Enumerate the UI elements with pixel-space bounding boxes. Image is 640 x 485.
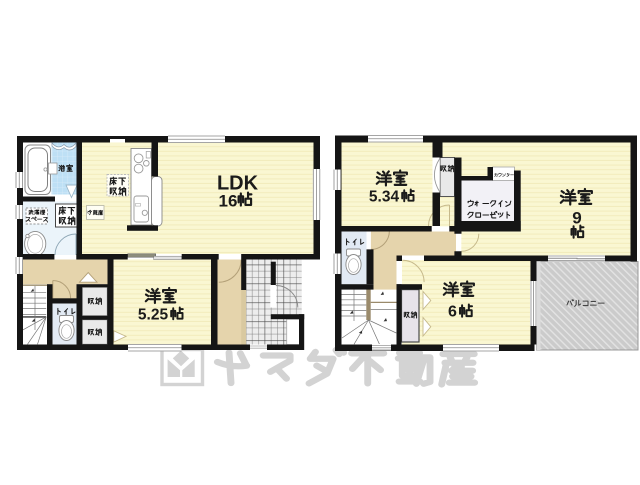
svg-text:5.25: 5.25 bbox=[138, 307, 169, 324]
svg-text:6: 6 bbox=[448, 304, 457, 321]
svg-text:5.34: 5.34 bbox=[369, 189, 400, 206]
svg-text:16: 16 bbox=[219, 192, 238, 211]
